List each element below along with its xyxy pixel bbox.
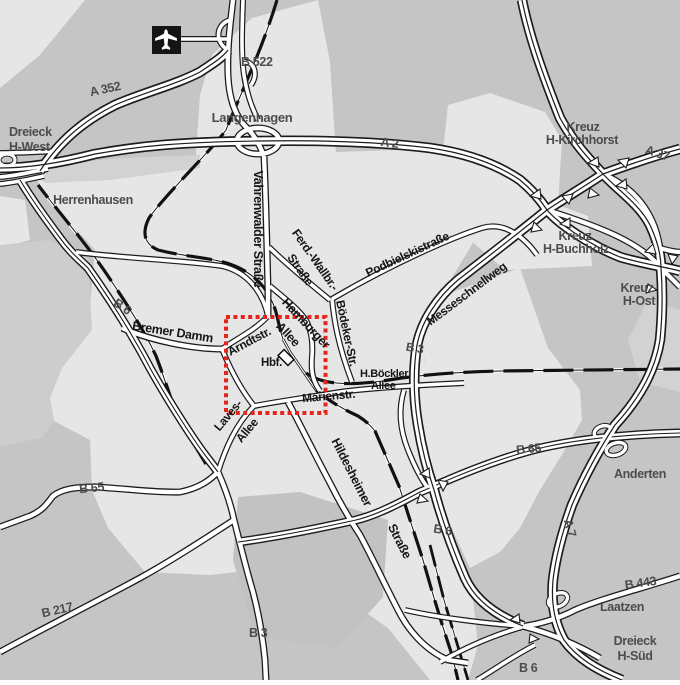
svg-text:Anderten: Anderten [614,467,666,481]
svg-text:H-Süd: H-Süd [617,649,652,663]
svg-text:B 65: B 65 [78,480,105,497]
svg-text:H-Buchholz: H-Buchholz [543,242,609,256]
svg-text:A 2: A 2 [380,135,400,151]
svg-text:B 522: B 522 [241,55,273,69]
svg-text:Dreieck: Dreieck [614,634,657,648]
svg-text:B 3: B 3 [249,626,268,640]
svg-text:B 6: B 6 [519,661,538,675]
svg-text:B 65: B 65 [515,441,542,458]
svg-text:Kreuz: Kreuz [567,120,600,134]
svg-text:Dreieck: Dreieck [9,125,52,139]
svg-text:H-Kirchhorst: H-Kirchhorst [546,133,619,147]
svg-text:Laatzen: Laatzen [600,600,644,614]
svg-text:Kreuz: Kreuz [621,281,654,295]
svg-text:Langenhagen: Langenhagen [212,110,293,125]
svg-text:Hbf.: Hbf. [261,357,282,369]
svg-text:Herrenhausen: Herrenhausen [53,193,133,207]
svg-text:H-Ost: H-Ost [623,294,656,308]
svg-text:H-West: H-West [9,140,51,154]
svg-text:H.Böckler: H.Böckler [360,368,409,380]
svg-text:Vahrenwalder Straße: Vahrenwalder Straße [251,170,265,287]
svg-text:Kreuz: Kreuz [559,229,592,243]
svg-text:Allee: Allee [371,380,396,392]
